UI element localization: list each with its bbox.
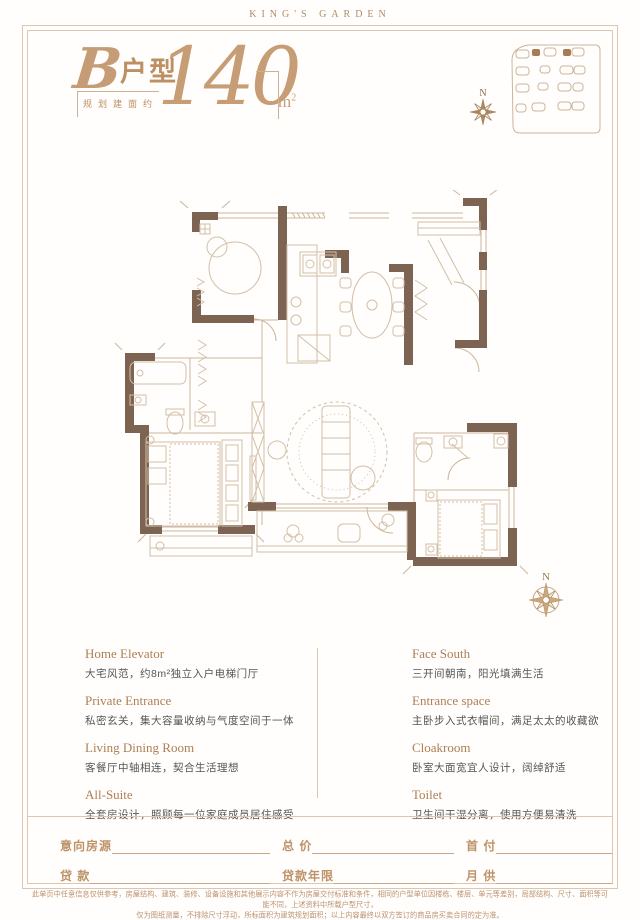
- form-field-monthly-payment: 月 供: [466, 867, 612, 884]
- feature-desc: 卧室大面宽宜人设计，阔绰舒适: [412, 760, 607, 775]
- feature-desc: 私密玄关，集大容量收纳与气度空间于一体: [85, 713, 310, 728]
- feature-title: Cloakroom: [412, 740, 607, 756]
- feature-title: Home Elevator: [85, 646, 310, 662]
- feature-living-dining: Living Dining Room 客餐厅中轴相连，契合生活理想: [85, 740, 310, 775]
- feature-desc: 客餐厅中轴相连，契合生活理想: [85, 760, 310, 775]
- brochure-page: KING'S GARDEN B 户型 规划建面约 140 m2 N: [0, 0, 640, 920]
- features-divider: [317, 648, 318, 798]
- area-unit-sup: 2: [291, 92, 296, 103]
- site-map: N: [460, 40, 610, 145]
- disclaimer-line-2: 仅为图纸测量，不排除尺寸浮动，所标面积为建筑规划面积；以上内容最终以双方签订的商…: [32, 910, 608, 920]
- feature-title: All-Suite: [85, 787, 310, 803]
- compass-north-label: N: [479, 88, 486, 99]
- features-right-column: Face South 三开间朝南，阳光填满生活 Entrance space 主…: [412, 646, 607, 834]
- area-unit: m2: [278, 92, 296, 112]
- form-field-line: [496, 869, 612, 884]
- feature-private-entrance: Private Entrance 私密玄关，集大容量收纳与气度空间于一体: [85, 693, 310, 728]
- form-field-line: [334, 869, 454, 884]
- form-field-line: [496, 839, 612, 854]
- form-field-line: [112, 839, 270, 854]
- area-unit-m: m: [278, 92, 291, 111]
- brand-title: KING'S GARDEN: [0, 9, 640, 20]
- compass-north-label: N: [542, 571, 550, 583]
- form-field-label: 月 供: [466, 867, 496, 884]
- unit-letter: B: [71, 36, 125, 102]
- form-field-total-price: 总 价: [282, 837, 454, 854]
- feature-face-south: Face South 三开间朝南，阳光填满生活: [412, 646, 607, 681]
- form-field-label: 总 价: [282, 837, 312, 854]
- title-bracket: [256, 71, 279, 119]
- features-left-column: Home Elevator 大宅风范，约8m²独立入户电梯门厅 Private …: [85, 646, 310, 834]
- intent-form: 意向房源 总 价 首 付 贷 款 贷款年限 月 供: [60, 824, 612, 884]
- feature-desc: 大宅风范，约8m²独立入户电梯门厅: [85, 666, 310, 681]
- feature-title: Private Entrance: [85, 693, 310, 709]
- floor-plan-windows: [115, 190, 528, 574]
- form-field-label: 意向房源: [60, 837, 112, 854]
- floor-plan: N: [100, 190, 570, 630]
- feature-title: Toilet: [412, 787, 607, 803]
- title-tick: [77, 91, 78, 117]
- feature-desc: 卫生间干湿分离，使用方便易清洗: [412, 807, 607, 822]
- form-field-label: 贷 款: [60, 867, 90, 884]
- site-buildings: [516, 48, 585, 112]
- planned-area-label: 规划建面约: [83, 97, 158, 110]
- form-field-label: 首 付: [466, 837, 496, 854]
- compass-icon: N: [528, 571, 565, 618]
- feature-title: Entrance space: [412, 693, 607, 709]
- form-field-listing: 意向房源: [60, 837, 270, 854]
- title-rule: [77, 91, 159, 92]
- disclaimer-line-1: 此单页中任意信息仅供参考，房屋结构、建筑、装修、设备设施和其他展示内容不作为房屋…: [32, 889, 608, 910]
- feature-desc: 三开间朝南，阳光填满生活: [412, 666, 607, 681]
- form-field-loan: 贷 款: [60, 867, 270, 884]
- form-row: 贷 款 贷款年限 月 供: [60, 854, 612, 884]
- feature-entrance-space: Entrance space 主卧步入式衣帽间，满足太太的收藏欲: [412, 693, 607, 728]
- unit-title-block: B 户型 规划建面约 140 m2: [74, 44, 314, 129]
- feature-home-elevator: Home Elevator 大宅风范，约8m²独立入户电梯门厅: [85, 646, 310, 681]
- feature-desc: 主卧步入式衣帽间，满足太太的收藏欲: [412, 713, 607, 728]
- form-separator: [27, 816, 613, 817]
- form-field-down-payment: 首 付: [466, 837, 612, 854]
- feature-cloakroom: Cloakroom 卧室大面宽宜人设计，阔绰舒适: [412, 740, 607, 775]
- form-field-label: 贷款年限: [282, 867, 334, 884]
- form-field-loan-term: 贷款年限: [282, 867, 454, 884]
- site-plan-outline: [512, 45, 600, 133]
- form-field-line: [312, 839, 454, 854]
- feature-title: Face South: [412, 646, 607, 662]
- form-field-line: [90, 869, 270, 884]
- feature-desc: 全套房设计，照顾每一位家庭成员居住感受: [85, 807, 310, 822]
- site-buildings-highlighted: [532, 49, 571, 56]
- feature-title: Living Dining Room: [85, 740, 310, 756]
- form-row: 意向房源 总 价 首 付: [60, 824, 612, 854]
- compass-icon: N: [466, 88, 500, 129]
- disclaimer: 此单页中任意信息仅供参考，房屋结构、建筑、装修、设备设施和其他展示内容不作为房屋…: [32, 889, 608, 920]
